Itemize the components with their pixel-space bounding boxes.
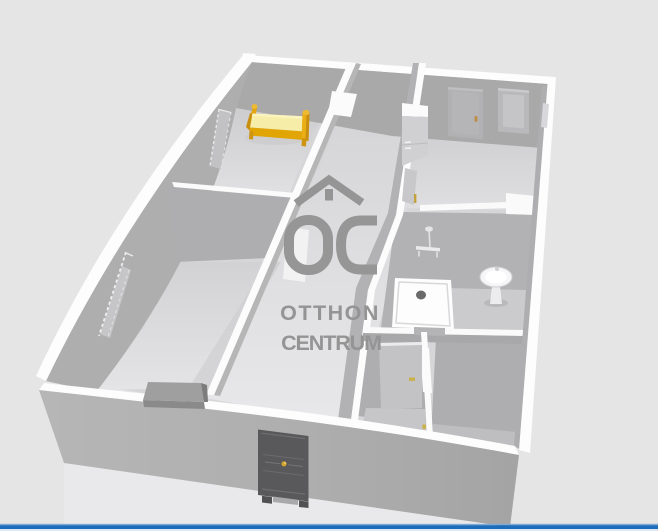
svg-text:OTTHON: OTTHON — [280, 301, 380, 325]
svg-text:CENTRUM: CENTRUM — [281, 331, 381, 355]
